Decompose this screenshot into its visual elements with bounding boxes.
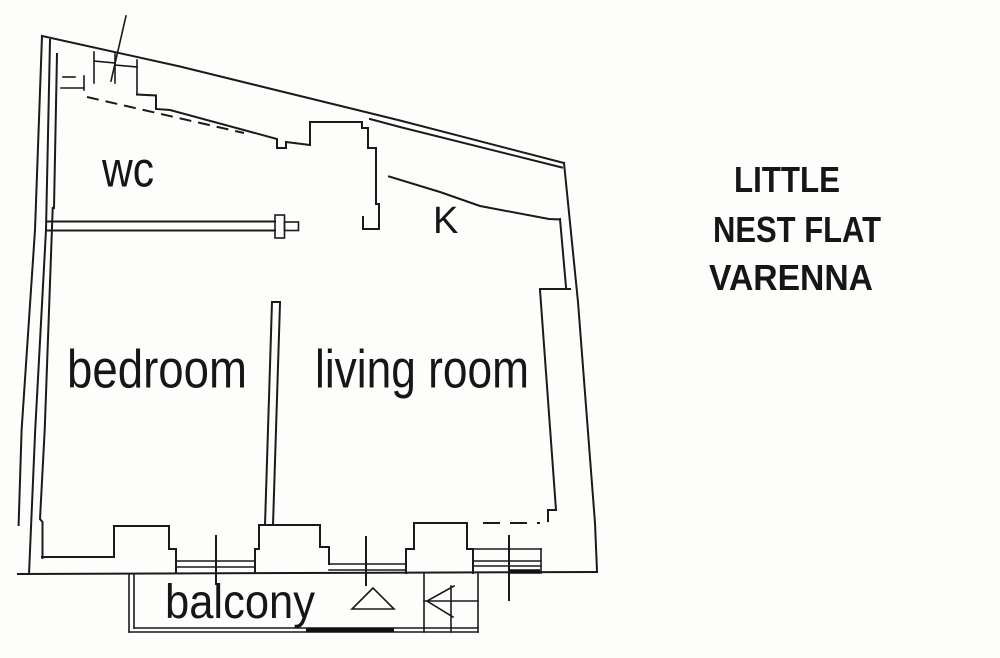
- svg-text:NEST FLAT: NEST FLAT: [713, 209, 881, 250]
- svg-text:living room: living room: [315, 340, 529, 400]
- svg-text:wc: wc: [101, 142, 154, 198]
- svg-text:balcony: balcony: [165, 576, 315, 629]
- svg-text:VARENNA: VARENNA: [709, 257, 873, 298]
- svg-text:LITTLE: LITTLE: [734, 159, 840, 200]
- svg-text:bedroom: bedroom: [67, 340, 247, 400]
- svg-text:K: K: [433, 200, 458, 242]
